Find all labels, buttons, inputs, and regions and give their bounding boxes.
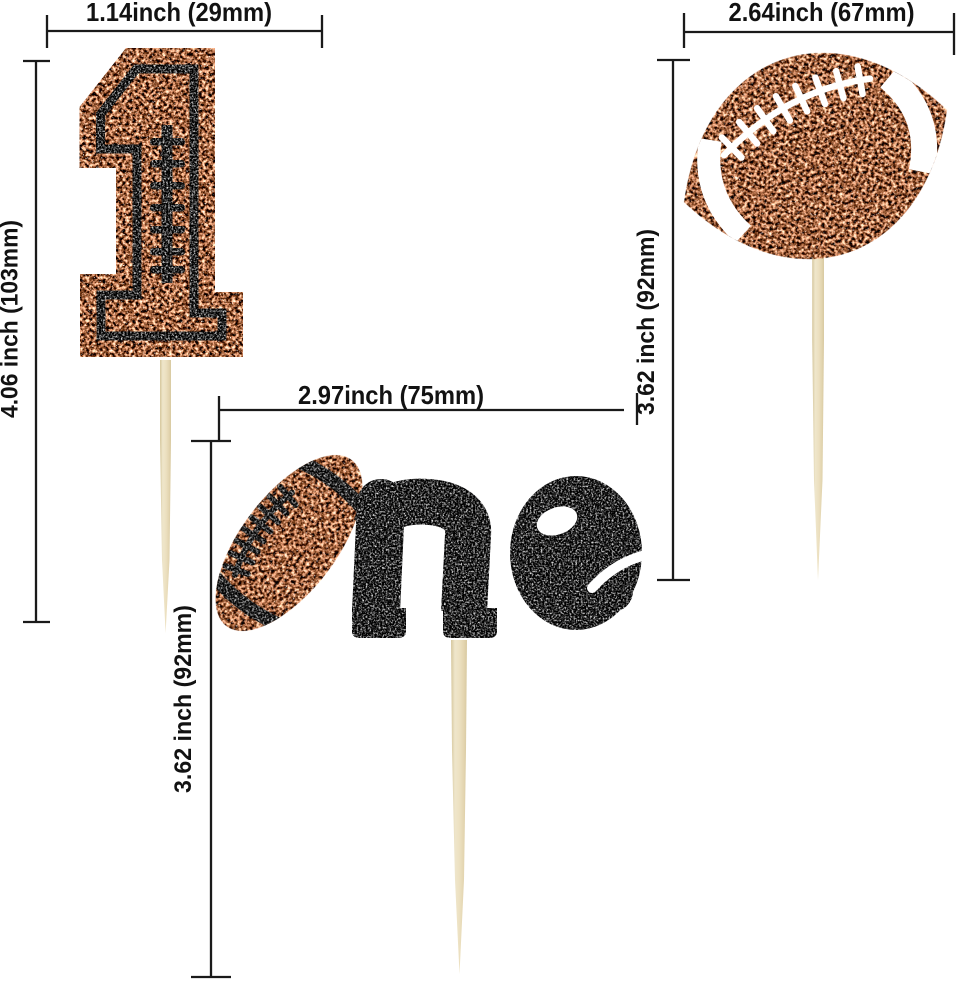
svg-text:3.62 inch (92mm): 3.62 inch (92mm) bbox=[170, 605, 197, 793]
svg-text:2.64inch (67mm): 2.64inch (67mm) bbox=[729, 0, 915, 27]
svg-text:1.14inch (29mm): 1.14inch (29mm) bbox=[86, 0, 272, 27]
svg-text:3.62 inch (92mm): 3.62 inch (92mm) bbox=[633, 229, 660, 415]
svg-text:4.06 inch (103mm): 4.06 inch (103mm) bbox=[0, 220, 24, 418]
svg-text:2.97inch (75mm): 2.97inch (75mm) bbox=[298, 380, 484, 410]
